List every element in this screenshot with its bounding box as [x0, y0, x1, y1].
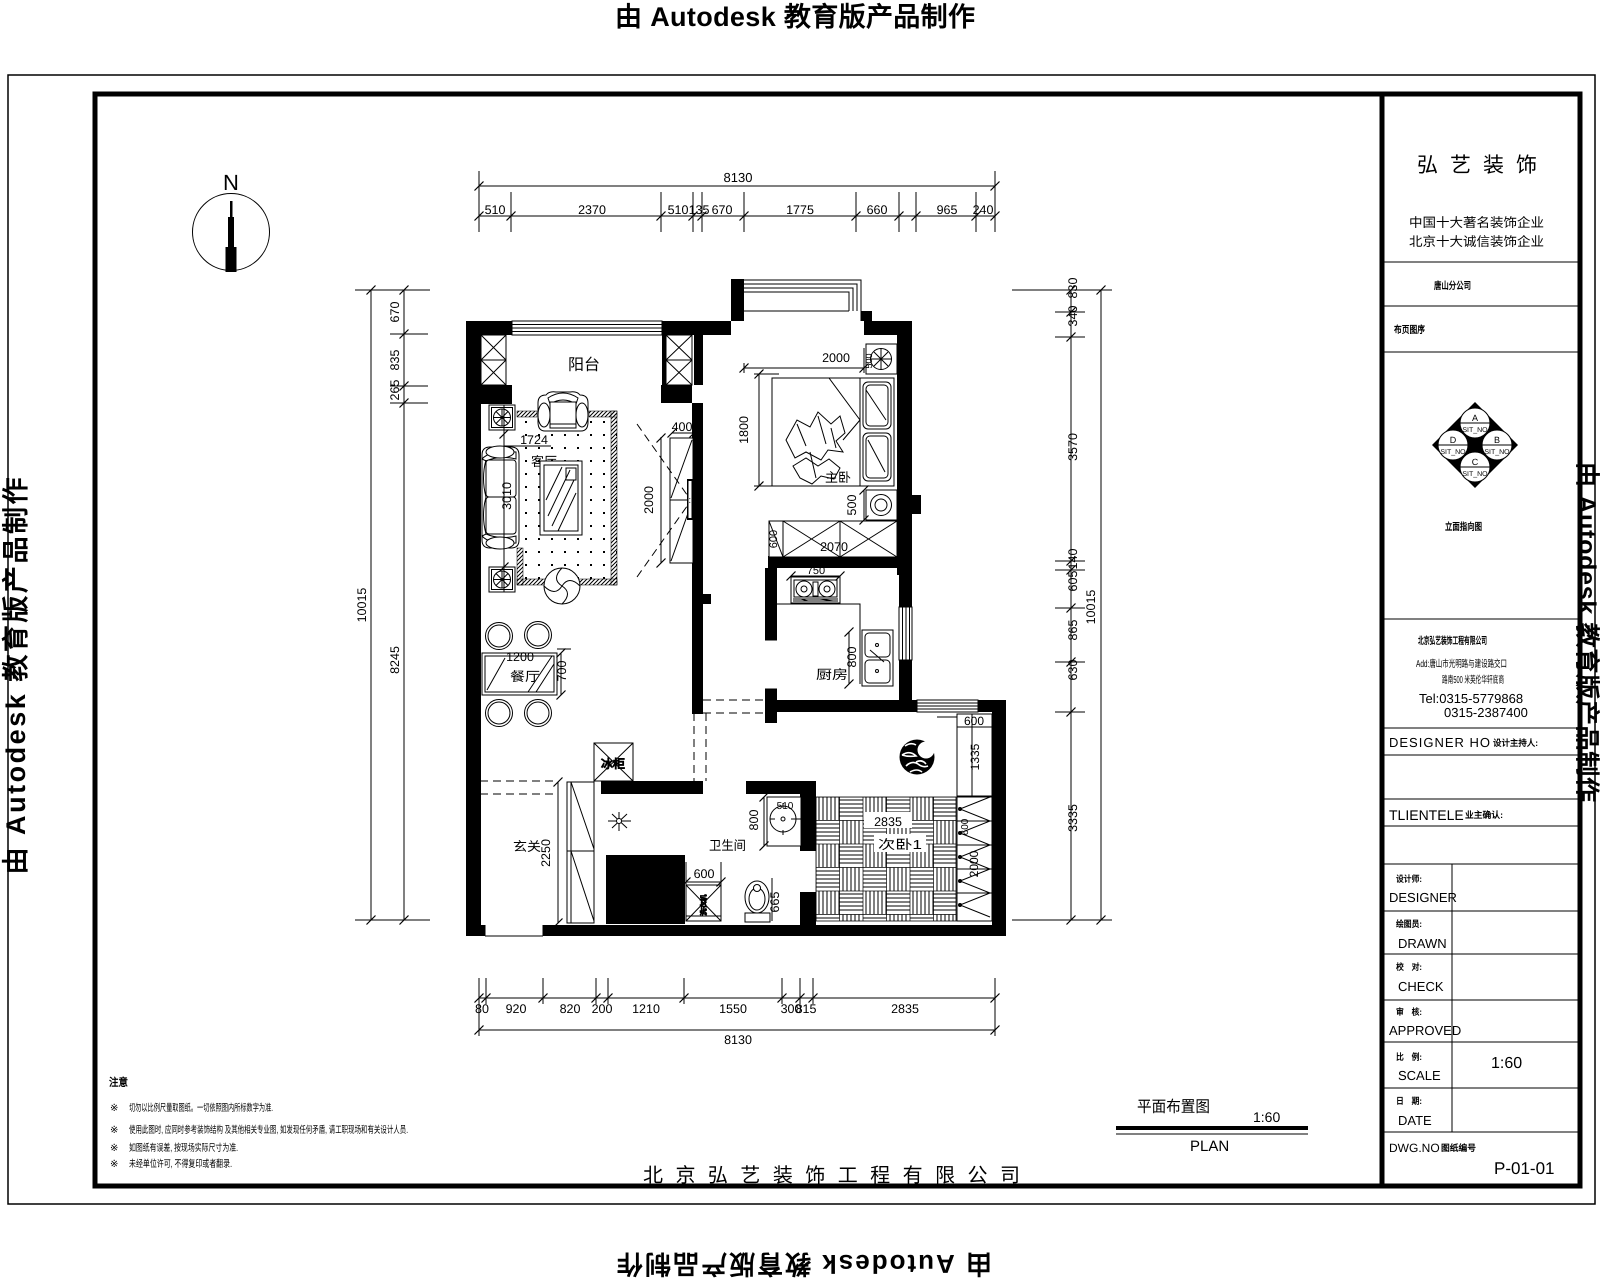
svg-text:比 例:: 比 例:	[1396, 1052, 1422, 1062]
svg-text:SIT_NO: SIT_NO	[1462, 471, 1488, 478]
svg-text:600: 600	[768, 530, 780, 548]
svg-text:670: 670	[388, 302, 402, 323]
svg-text:布页图序: 布页图序	[1394, 324, 1425, 336]
svg-text:1724: 1724	[520, 433, 548, 447]
svg-text:卫生间: 卫生间	[709, 838, 746, 853]
svg-text:DESIGNER HO: DESIGNER HO	[1389, 735, 1491, 750]
svg-text:670: 670	[712, 203, 733, 217]
svg-text:DESIGNER: DESIGNER	[1389, 890, 1457, 905]
svg-text:A: A	[1472, 413, 1478, 423]
svg-text:3010: 3010	[500, 482, 514, 510]
svg-text:965: 965	[937, 203, 958, 217]
svg-text:1210: 1210	[632, 1002, 660, 1016]
svg-text:CHECK: CHECK	[1398, 979, 1444, 994]
svg-text:立面指向图: 立面指向图	[1445, 521, 1482, 533]
svg-text:未经单位许可, 不得复印或者翻录.: 未经单位许可, 不得复印或者翻录.	[129, 1158, 232, 1170]
svg-text:次卧1: 次卧1	[878, 837, 922, 852]
svg-text:3570: 3570	[1066, 433, 1080, 461]
svg-text:B: B	[1494, 435, 1500, 445]
svg-text:SCALE: SCALE	[1398, 1068, 1441, 1083]
svg-text:3335: 3335	[1066, 804, 1080, 832]
svg-text:665: 665	[768, 892, 782, 913]
svg-text:PLAN: PLAN	[1190, 1138, 1229, 1155]
svg-text:1335: 1335	[968, 743, 982, 770]
svg-text:10015: 10015	[355, 588, 369, 623]
svg-text:2000: 2000	[822, 351, 850, 365]
svg-text:510: 510	[668, 203, 689, 217]
svg-text:815: 815	[796, 1002, 817, 1016]
svg-text:8130: 8130	[724, 170, 753, 185]
svg-text:1775: 1775	[786, 203, 814, 217]
svg-text:80: 80	[475, 1002, 489, 1016]
svg-text:135: 135	[689, 203, 710, 217]
svg-text:Tel:0315-5779868: Tel:0315-5779868	[1419, 691, 1523, 706]
svg-text:DRAWN: DRAWN	[1398, 936, 1447, 951]
svg-text:TLIENTELE: TLIENTELE	[1389, 807, 1464, 823]
svg-text:图纸编号: 图纸编号	[1441, 1143, 1476, 1153]
svg-text:1550: 1550	[719, 1002, 747, 1016]
svg-text:630: 630	[1066, 660, 1080, 681]
svg-text:830: 830	[1066, 278, 1080, 299]
svg-text:510: 510	[777, 801, 794, 812]
svg-text:8245: 8245	[388, 646, 402, 674]
svg-text:切勿以比例尺量取图纸。一切依照图内所标数字为准.: 切勿以比例尺量取图纸。一切依照图内所标数字为准.	[129, 1102, 273, 1114]
svg-text:600: 600	[964, 714, 984, 728]
svg-text:N: N	[223, 170, 239, 195]
svg-text:洗衣机: 洗衣机	[700, 895, 708, 916]
svg-text:餐厅: 餐厅	[510, 669, 540, 684]
svg-text:唐山分公司: 唐山分公司	[1434, 280, 1471, 292]
svg-text:如图纸有误差, 按现场实际尺寸为准.: 如图纸有误差, 按现场实际尺寸为准.	[129, 1142, 238, 1154]
svg-text:2000: 2000	[642, 486, 656, 514]
svg-text:绘图员:: 绘图员:	[1396, 919, 1422, 929]
svg-text:※: ※	[110, 1125, 118, 1136]
svg-text:820: 820	[560, 1002, 581, 1016]
svg-text:厨房: 厨房	[816, 667, 848, 682]
svg-text:C: C	[1472, 457, 1479, 467]
svg-text:※: ※	[110, 1159, 118, 1170]
svg-text:审 核:: 审 核:	[1396, 1007, 1422, 1017]
svg-text:2835: 2835	[891, 1002, 919, 1016]
svg-text:2000: 2000	[967, 850, 981, 877]
svg-text:500: 500	[864, 353, 874, 368]
svg-text:700: 700	[555, 661, 569, 682]
svg-text:SIT_NO: SIT_NO	[1440, 449, 1466, 456]
svg-text:※: ※	[110, 1103, 118, 1114]
svg-text:2250: 2250	[539, 839, 553, 867]
svg-text:500: 500	[845, 495, 859, 516]
svg-text:设计主持人:: 设计主持人:	[1493, 738, 1538, 748]
svg-text:路南500 米英伦华轩底商: 路南500 米英伦华轩底商	[1442, 674, 1504, 686]
svg-text:注意: 注意	[109, 1076, 128, 1089]
svg-text:800: 800	[747, 810, 761, 831]
svg-text:SIT_NO: SIT_NO	[1484, 449, 1510, 456]
svg-text:200: 200	[592, 1002, 613, 1016]
svg-text:北京十大诚信装饰企业: 北京十大诚信装饰企业	[1409, 234, 1544, 249]
svg-text:主卧: 主卧	[825, 470, 851, 485]
svg-text:240: 240	[973, 203, 994, 217]
svg-text:中国十大著名装饰企业: 中国十大著名装饰企业	[1409, 215, 1544, 230]
svg-text:605: 605	[1066, 571, 1080, 592]
svg-text:玄关: 玄关	[513, 839, 541, 854]
svg-text:2070: 2070	[820, 540, 848, 554]
svg-text:DWG.NO: DWG.NO	[1389, 1141, 1440, 1155]
svg-text:SIT_NO: SIT_NO	[1462, 427, 1488, 434]
svg-text:P-01-01: P-01-01	[1494, 1159, 1554, 1178]
svg-text:设计师:: 设计师:	[1396, 874, 1422, 884]
svg-text:平面布置图: 平面布置图	[1137, 1098, 1210, 1116]
svg-text:750: 750	[807, 565, 825, 577]
svg-text:140: 140	[1066, 549, 1080, 570]
svg-text:※: ※	[110, 1143, 118, 1154]
svg-text:由 Autodesk 教育版产品制作: 由 Autodesk 教育版产品制作	[1572, 462, 1600, 802]
svg-text:1:60: 1:60	[1253, 1109, 1280, 1125]
svg-text:D: D	[1450, 435, 1457, 445]
svg-text:800: 800	[845, 647, 859, 668]
svg-text:日 期:: 日 期:	[1396, 1096, 1422, 1106]
svg-text:0315-2387400: 0315-2387400	[1444, 705, 1528, 720]
svg-text:340: 340	[1066, 306, 1080, 327]
svg-text:8130: 8130	[724, 1033, 752, 1047]
svg-text:600: 600	[694, 867, 715, 881]
svg-text:由 Autodesk 教育版产品制作: 由 Autodesk 教育版产品制作	[615, 2, 975, 32]
svg-text:北京弘艺装饰工程有限公司: 北京弘艺装饰工程有限公司	[1418, 635, 1487, 647]
svg-text:510: 510	[485, 203, 506, 217]
svg-text:865: 865	[1066, 620, 1080, 641]
svg-text:660: 660	[867, 203, 888, 217]
svg-text:校 对:: 校 对:	[1396, 962, 1422, 972]
svg-text:阳台: 阳台	[568, 356, 600, 374]
svg-text:使用此图时, 应同时参考装饰结构 及其他相关专业图, 如发现: 使用此图时, 应同时参考装饰结构 及其他相关专业图, 如发现任何矛盾, 请工职现…	[129, 1124, 408, 1136]
svg-text:10015: 10015	[1084, 590, 1098, 625]
svg-text:冰柜: 冰柜	[601, 757, 625, 771]
svg-text:业主确认:: 业主确认:	[1465, 810, 1503, 820]
svg-text:835: 835	[388, 350, 402, 371]
svg-text:1800: 1800	[737, 416, 751, 444]
svg-text:265: 265	[388, 380, 402, 401]
svg-text:600: 600	[960, 818, 971, 835]
svg-text:1200: 1200	[506, 650, 534, 664]
svg-text:Add:唐山市光明路与建设路交口: Add:唐山市光明路与建设路交口	[1416, 658, 1507, 670]
svg-text:APPROVED: APPROVED	[1389, 1023, 1461, 1038]
svg-text:920: 920	[506, 1002, 527, 1016]
svg-text:DATE: DATE	[1398, 1113, 1432, 1128]
svg-text:400: 400	[672, 420, 693, 434]
svg-text:2370: 2370	[578, 203, 606, 217]
svg-text:1:60: 1:60	[1491, 1055, 1522, 1072]
svg-text:2835: 2835	[874, 815, 902, 829]
